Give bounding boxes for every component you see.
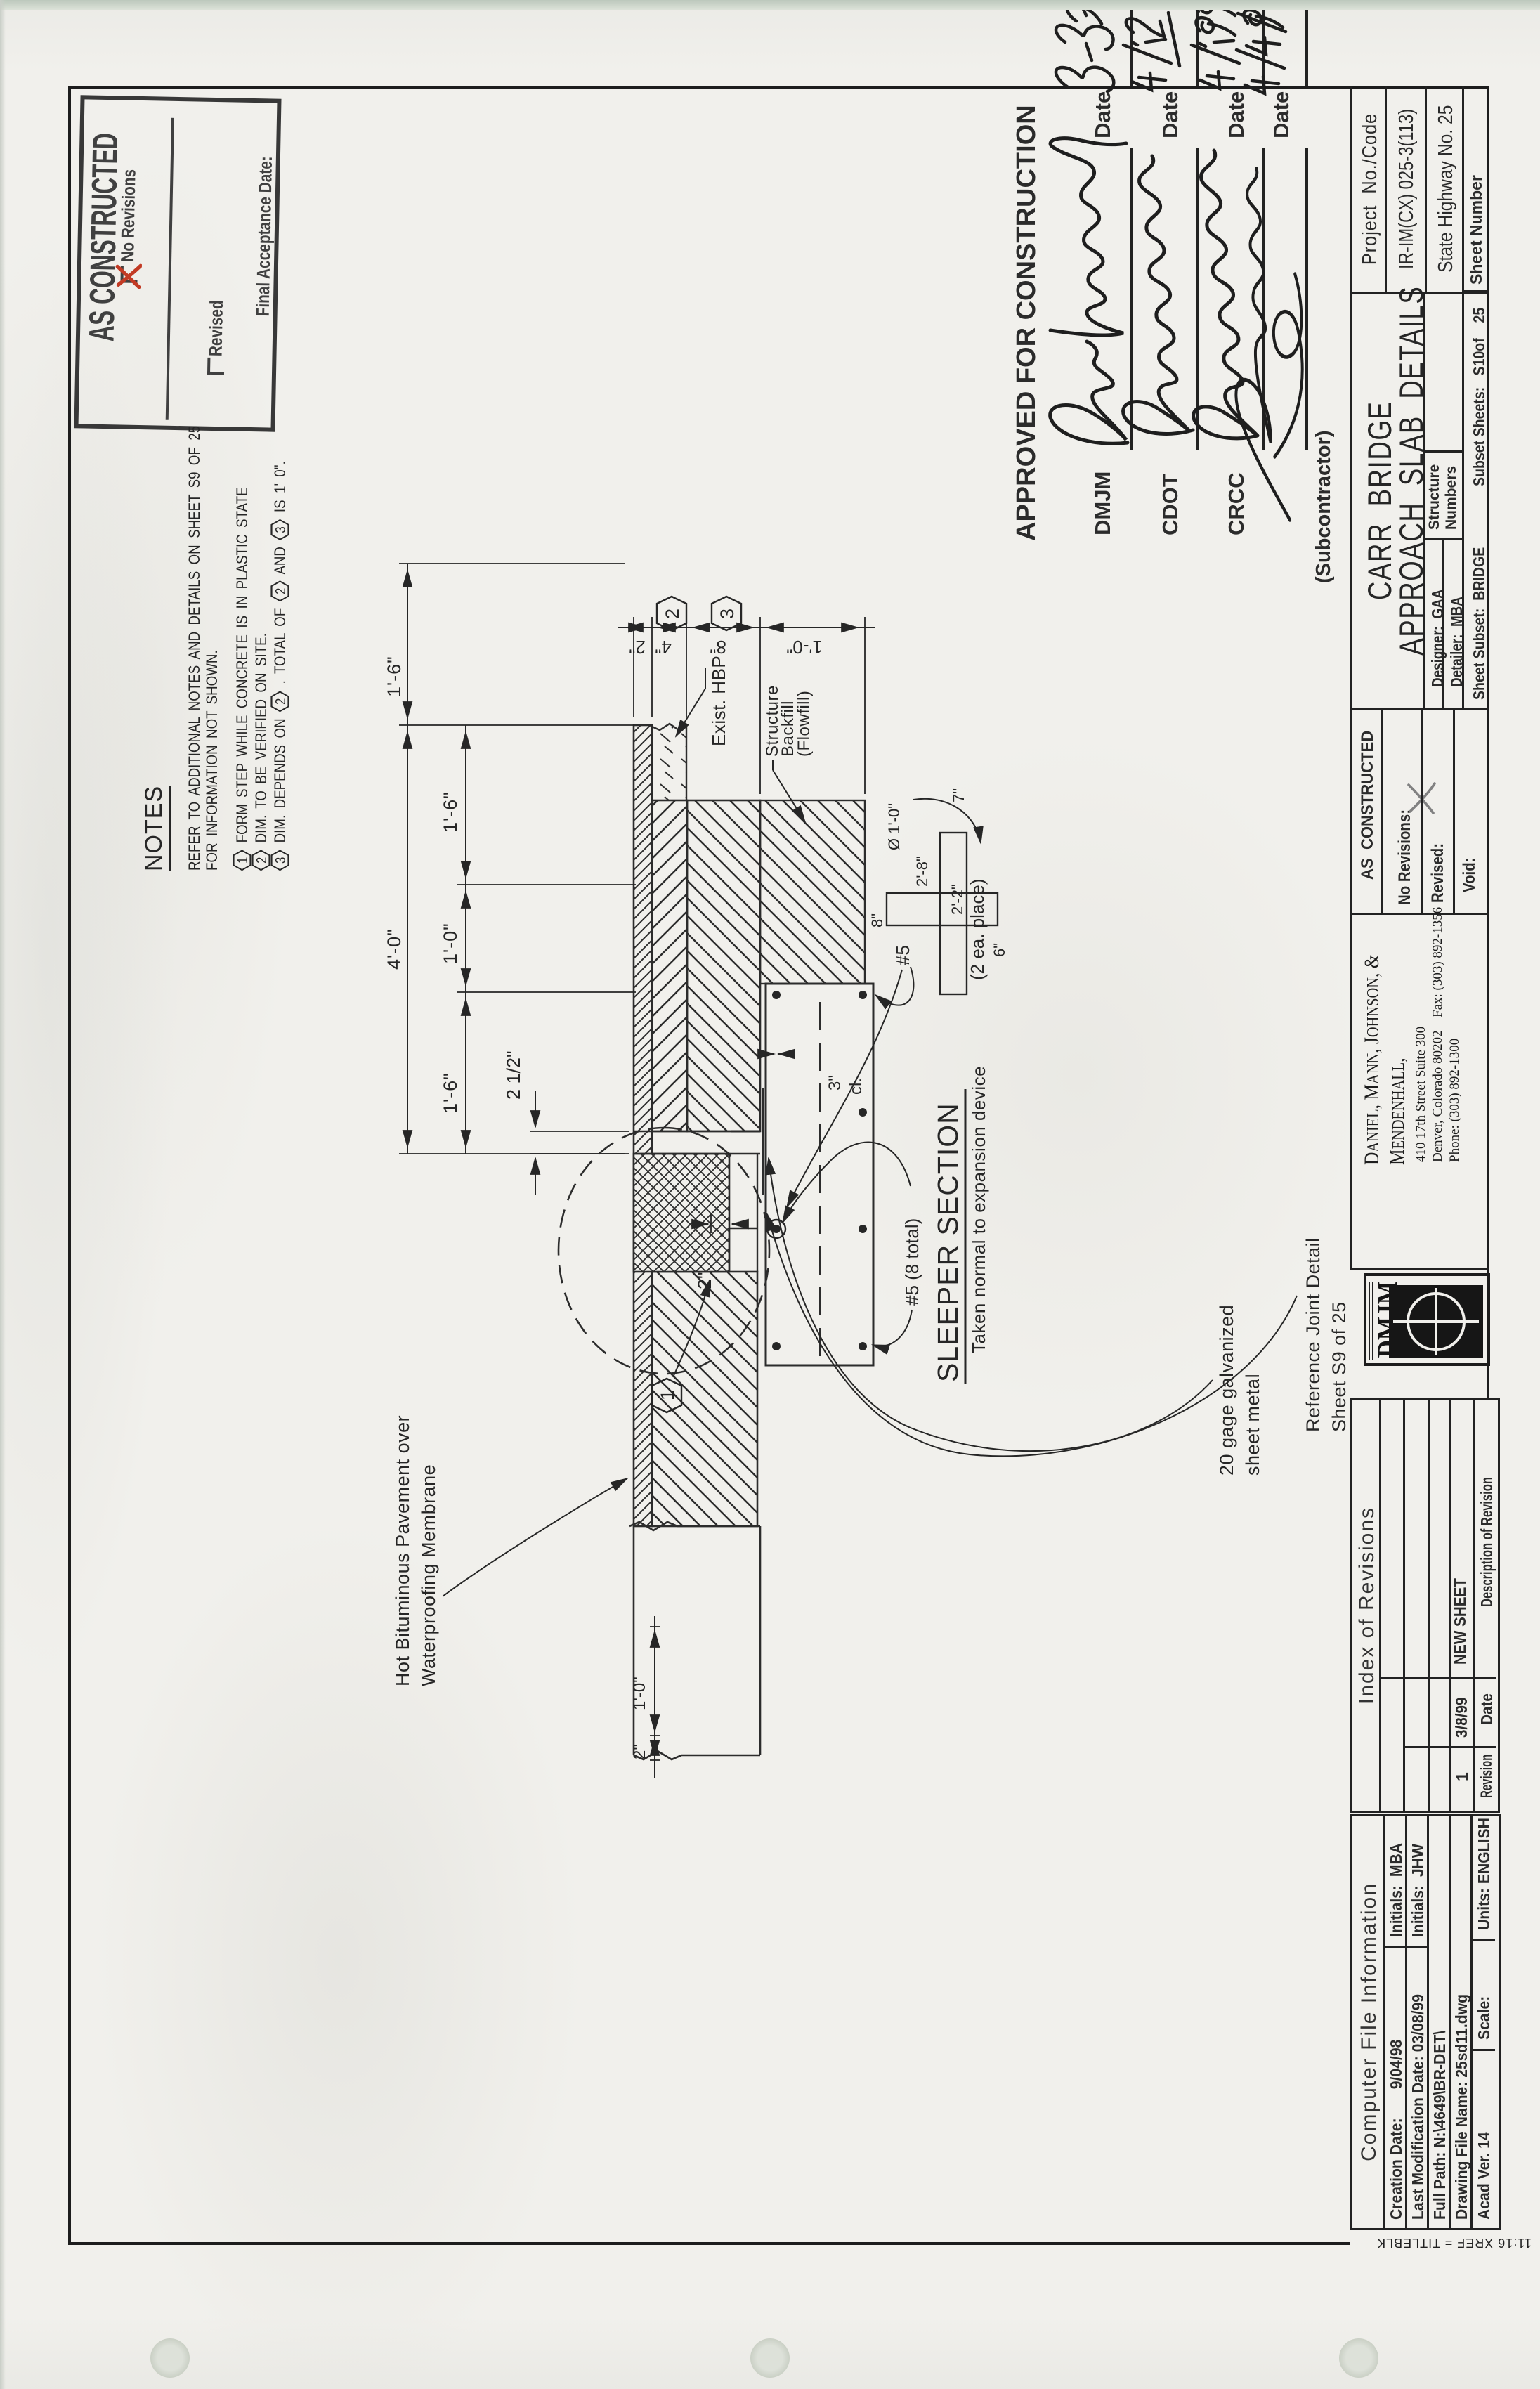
svg-text:cl.: cl. <box>847 1078 866 1095</box>
svg-text:6": 6" <box>991 943 1008 957</box>
svg-text:3: 3 <box>717 608 738 619</box>
svg-text:3": 3" <box>826 1075 844 1091</box>
svg-text:1: 1 <box>235 857 251 864</box>
svg-text:20 gage galvanized: 20 gage galvanized <box>1216 1305 1237 1476</box>
svg-text:2": 2" <box>629 637 646 658</box>
svg-text:2": 2" <box>630 1744 649 1759</box>
svg-text:2: 2 <box>662 608 683 619</box>
svg-text:1'‑0": 1'‑0" <box>786 637 823 658</box>
svg-text:2'‑8": 2'‑8" <box>913 856 931 887</box>
svg-text:4'‑0": 4'‑0" <box>384 928 405 970</box>
svg-text:1'‑6": 1'‑6" <box>384 656 405 697</box>
svg-text:(2 ea. place): (2 ea. place) <box>967 878 988 980</box>
svg-text:Waterproofing Membrane: Waterproofing Membrane <box>418 1464 439 1686</box>
svg-text:SLEEPER SECTION: SLEEPER SECTION <box>932 1102 964 1382</box>
svg-text:8": 8" <box>868 913 886 927</box>
svg-text:1'‑0": 1'‑0" <box>440 923 461 964</box>
svg-text:7": 7" <box>950 788 967 802</box>
svg-text:3: 3 <box>273 857 289 864</box>
svg-text:1: 1 <box>657 1390 678 1400</box>
svg-text:2'‑2": 2'‑2" <box>948 884 966 915</box>
svg-text:2: 2 <box>273 588 289 594</box>
svg-text:Hot Bituminous Pavement over: Hot Bituminous Pavement over <box>392 1415 413 1686</box>
svg-text:1'‑6": 1'‑6" <box>440 1072 461 1114</box>
svg-text:#5 (8 total): #5 (8 total) <box>901 1218 922 1306</box>
svg-text:3: 3 <box>273 526 289 533</box>
svg-text:Exist. HBP: Exist. HBP <box>708 656 729 746</box>
svg-text:#5: #5 <box>892 945 913 965</box>
svg-text:2: 2 <box>273 698 289 705</box>
svg-text:Taken normal to expansion devi: Taken normal to expansion device <box>968 1066 989 1353</box>
svg-text:4": 4" <box>655 637 672 658</box>
svg-text:Ø 1'‑0": Ø 1'‑0" <box>885 803 903 850</box>
svg-text:1'‑6": 1'‑6" <box>440 791 461 833</box>
svg-text:2": 2" <box>694 1272 715 1289</box>
svg-text:1'‑0": 1'‑0" <box>630 1677 649 1710</box>
svg-text:sheet metal: sheet metal <box>1242 1374 1263 1476</box>
svg-text:8": 8" <box>710 637 726 658</box>
svg-text:2: 2 <box>254 857 270 864</box>
svg-text:Reference Joint Detail: Reference Joint Detail <box>1303 1237 1324 1432</box>
svg-text:Sheet S9 of 25: Sheet S9 of 25 <box>1329 1301 1350 1432</box>
svg-text:(Flowfill): (Flowfill) <box>795 691 814 757</box>
svg-text:2 1/2": 2 1/2" <box>503 1050 524 1100</box>
